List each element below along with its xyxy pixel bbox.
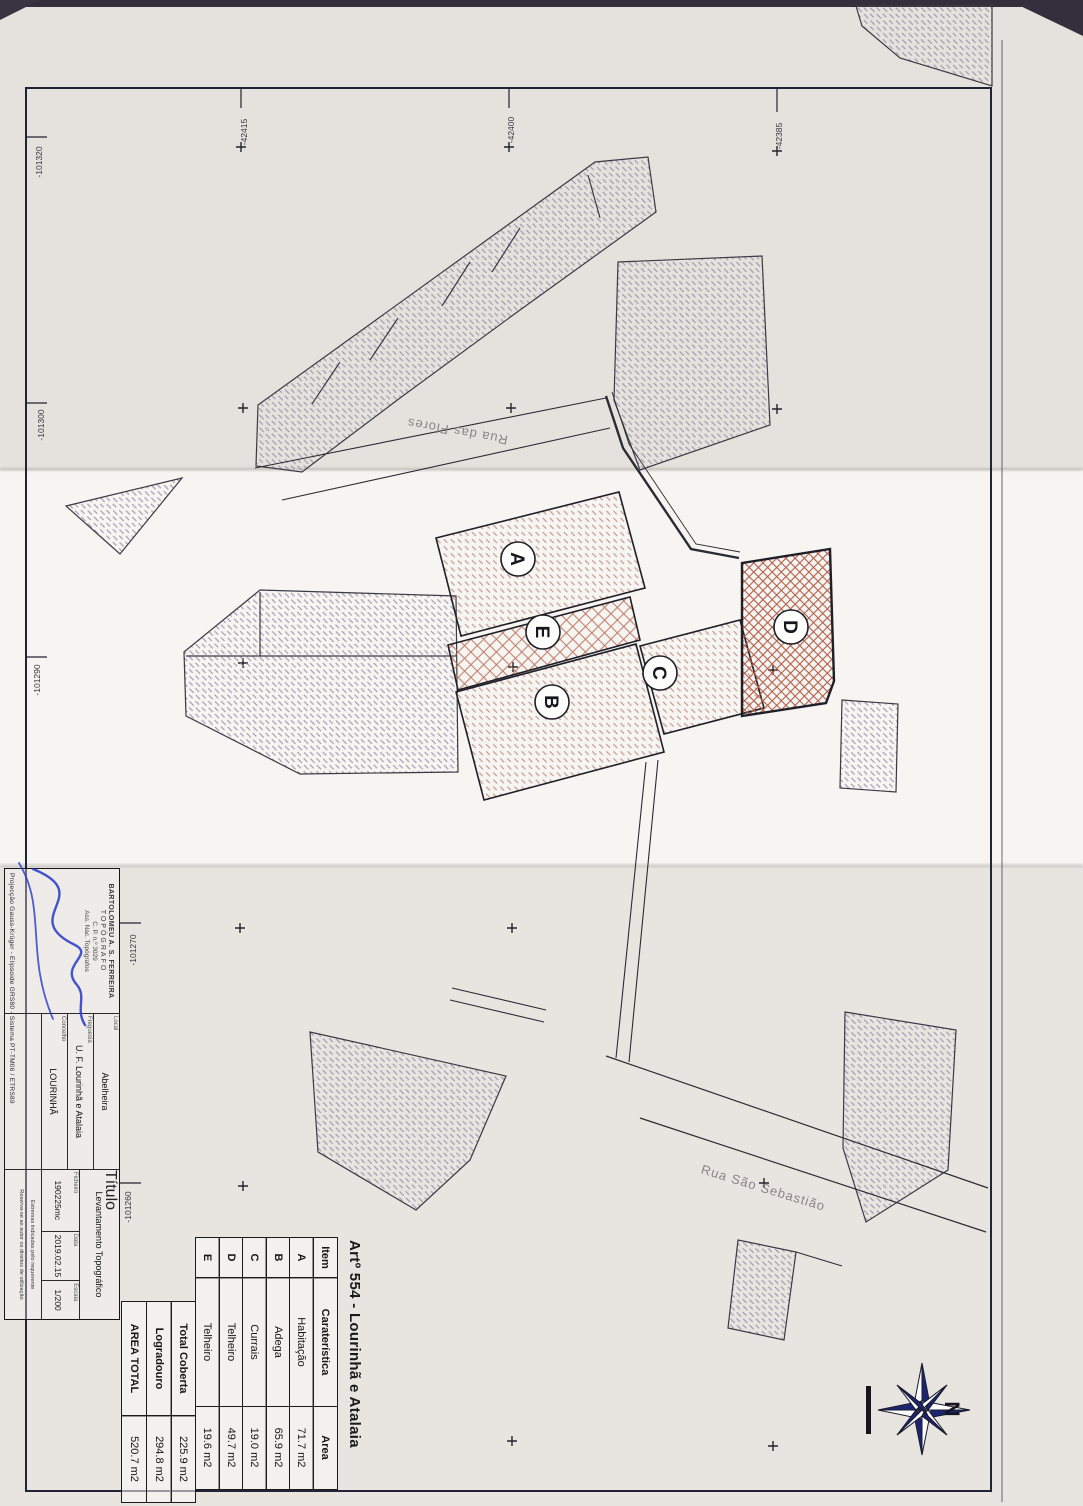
field-ficheiro: Ficheiro 190225mc [42,1170,79,1232]
col-header-area: Area [313,1406,339,1490]
col-header-item: Item [313,1237,339,1279]
field-label: Data [72,1234,78,1247]
street-label-rua-sao-sebastiao: Rua São Sebastião [699,1162,827,1214]
table-summary-row: AREA TOTAL 520.7 m2 [122,1302,148,1506]
field-value: LOURINHÃ [48,1014,58,1169]
summary-value: 520.7 m2 [122,1415,148,1503]
cell-item: C [242,1237,267,1279]
title-block: BARTOLOMEU A. S. FERREIRA TOPÓGRAFO C. P… [6,868,120,1318]
cell-caracteristica: Adega [266,1277,291,1407]
note-line: Reserva-se ao autor os direitos de utili… [16,1170,27,1319]
cell-area: 71.7 m2 [289,1406,314,1490]
lane-edge [616,762,646,1058]
grid-label: -101290 [32,664,42,695]
grid-label: -101300 [36,409,46,440]
table-row: D Telheiro 49.7 m2 [219,1238,244,1506]
cell-caracteristica: Habitação [289,1277,314,1407]
field-freguesia: Freguesia U. F. Lourinhã e Atalaia [67,1014,93,1169]
field-label: Escala [72,1283,78,1301]
area-table-block: Artº 554 - Lourinhã e Atalaia Item Carat… [123,1238,363,1506]
scanned-sheet: -101320 -101300 -101290 -101270 -101260 … [0,0,1083,1506]
parcel-hatched [614,256,770,470]
grid-label: -42385 [774,122,784,149]
parcel-hatched [728,1240,796,1340]
table-row: B Adega 65.9 m2 [266,1238,291,1506]
field-value: 1/200 [53,1281,63,1319]
summary-value: 294.8 m2 [146,1415,172,1503]
table-summary-row: Logradouro 294.8 m2 [146,1302,172,1506]
cell-caracteristica: Telheiro [219,1277,244,1407]
cell-item: A [289,1237,314,1279]
summary-label: Logradouro [146,1301,172,1417]
cell-item: E [195,1237,220,1279]
field-titulo: Título Levantamento Topográfico [79,1170,119,1319]
surveyor-stamp: BARTOLOMEU A. S. FERREIRA TOPÓGRAFO C. P… [5,869,119,1014]
grid-label: -101260 [123,1191,133,1222]
field-value: Levantamento Topográfico [94,1170,104,1319]
file-date-scale-row: Ficheiro 190225mc Data 2019.02.15 Escala… [41,1170,79,1319]
parcel-hatched [840,700,898,792]
projection-note: Projecção Gauss-Krüger - Elipsoide GRS80… [8,873,15,1165]
compass-bar [866,1386,871,1434]
cell-item: D [219,1237,244,1279]
cell-item: B [266,1237,291,1279]
field-concelho: Concelho LOURINHÃ [41,1014,67,1169]
parcel-hatched [310,1032,506,1210]
surveyor-org: Ass. Nac. Topógrafos [83,869,90,1013]
cell-caracteristica: Currais [242,1277,267,1407]
grid-label: -101320 [34,146,44,177]
cell-area: 19.0 m2 [242,1406,267,1490]
fine-print: Estremas indicadas pelo requerente Reser… [3,1170,41,1319]
summary-value: 225.9 m2 [171,1415,197,1503]
table-header-row: Item Caraterística Area [313,1238,339,1506]
summary-label: AREA TOTAL [122,1301,148,1417]
compass-north-letter: N [940,1401,963,1416]
surveyor-license: C. P. n.º 3029 [91,869,98,1013]
scan-corner [1008,0,1083,36]
field-value: 190225mc [53,1170,63,1231]
field-value: U. F. Lourinhã e Atalaia [74,1014,84,1169]
cell-area: 65.9 m2 [266,1406,291,1490]
cell-area: 19.6 m2 [195,1406,220,1490]
field-value: Abelheira [100,1014,110,1169]
building-label-D: D [779,620,800,634]
parcel-hatched [856,6,992,86]
summary-label: Total Coberta [171,1301,197,1417]
table-row: C Currais 19.0 m2 [242,1238,267,1506]
grid-label: -42415 [239,118,249,145]
grid-label: -42400 [506,116,516,143]
note-line: Estremas indicadas pelo requerente [26,1170,37,1319]
location-fields: Local Abelheira Freguesia U. F. Lourinhã… [41,1014,119,1169]
col-header-caracteristica: Caraterística [313,1277,339,1407]
field-label: Título [102,1170,119,1210]
field-data: Data 2019.02.15 [42,1232,79,1282]
field-escala: Escala 1/200 [42,1281,79,1319]
area-table: Item Caraterística Area A Habitação 71.7… [122,1238,339,1506]
cell-area: 49.7 m2 [219,1406,244,1490]
scan-corner [0,0,40,20]
table-row: A Habitação 71.7 m2 [289,1238,314,1506]
building-label-C: C [648,666,669,680]
building-label-E: E [531,626,552,639]
building-label-B: B [540,695,561,709]
field-local: Local Abelheira [93,1014,119,1169]
title-fields: Título Levantamento Topográfico Ficheiro… [5,1169,119,1319]
surveyor-name: BARTOLOMEU A. S. FERREIRA [107,869,114,1013]
field-label: Freguesia [86,1016,92,1043]
sheet-title: Artº 554 - Lourinhã e Atalaia [337,1238,363,1506]
surveyor-role: TOPÓGRAFO [99,869,106,1013]
field-label: Ficheiro [72,1172,78,1193]
field-label: Local [112,1016,118,1030]
buildings [436,492,834,800]
grid-ticks-top [241,88,777,112]
grid-label: -101270 [128,934,138,965]
building-label-A: A [506,552,527,566]
parcel-hatched [66,478,182,554]
north-compass: N [866,1363,970,1455]
field-value: 2019.02.15 [53,1232,63,1281]
field-label: Concelho [60,1016,66,1041]
cell-caracteristica: Telheiro [195,1277,220,1407]
lane-edge [629,760,658,1062]
table-row: E Telheiro 19.6 m2 [195,1238,220,1506]
table-summary-row: Total Coberta 225.9 m2 [171,1302,197,1506]
parcel-hatched [184,590,458,774]
